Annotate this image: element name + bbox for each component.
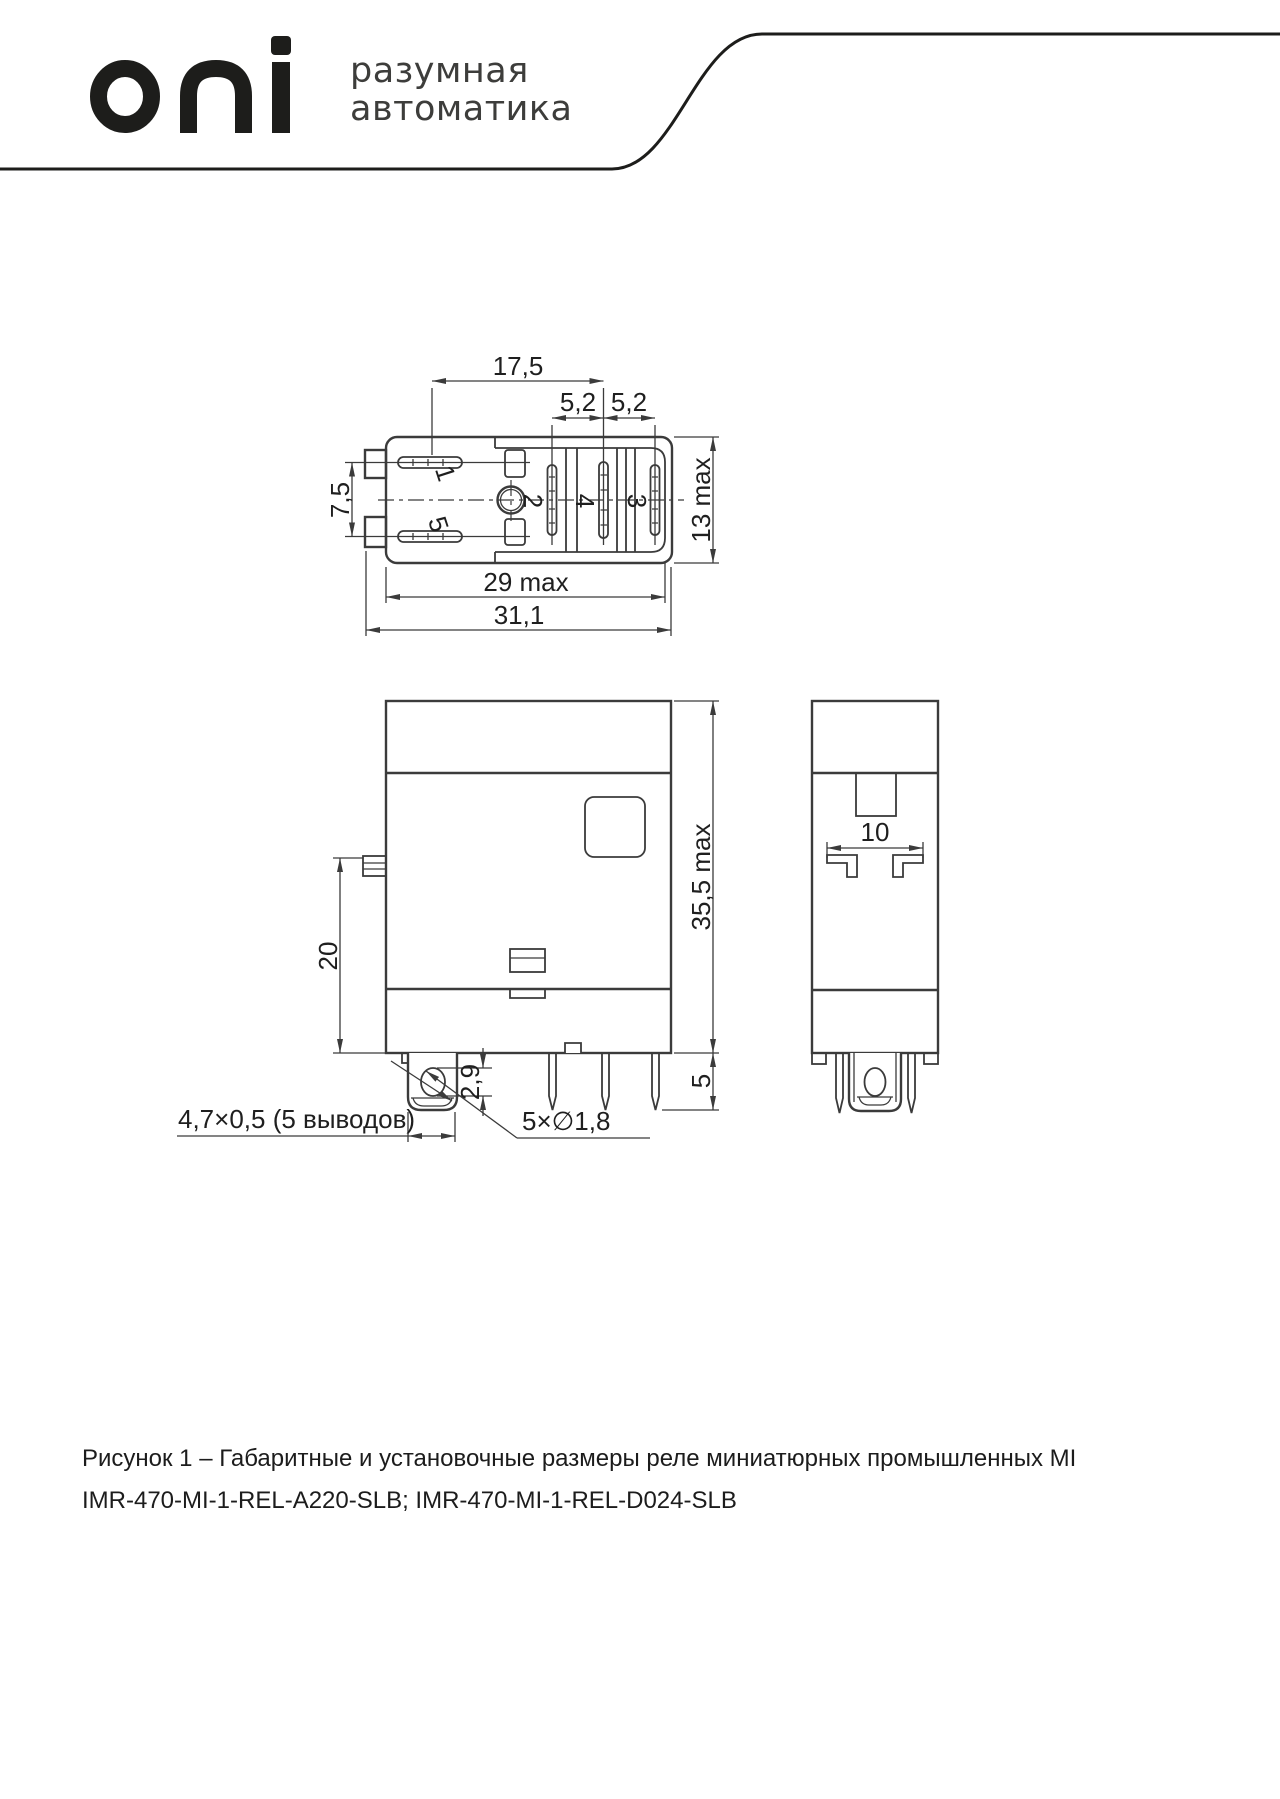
top-view: 1 5 2 4 3 17,5 5,2 5,2 7,5 13 max 29 max	[325, 351, 719, 636]
dim-2-9: 2,9	[455, 1064, 485, 1100]
front-view-body	[386, 701, 671, 1053]
dim-10: 10	[861, 817, 890, 847]
side-view-body	[812, 701, 938, 1053]
pin-label-4: 4	[570, 494, 600, 508]
front-view-window	[585, 797, 645, 857]
side-view-clip-right	[893, 855, 923, 877]
side-view: 10	[812, 701, 938, 1113]
pin-label-1: 1	[429, 462, 462, 485]
top-view-lug-lower	[365, 517, 386, 547]
dim-7-5: 7,5	[325, 482, 355, 518]
pin-label-3: 3	[622, 494, 652, 508]
front-view-blade	[408, 1053, 457, 1110]
datasheet-page: разумная автоматика	[0, 0, 1280, 1799]
front-view-pin-4	[602, 1053, 609, 1110]
relay-dimension-drawing: 1 5 2 4 3 17,5 5,2 5,2 7,5 13 max 29 max	[0, 0, 1280, 1799]
dim-31-1: 31,1	[494, 600, 545, 630]
dim-5-2-left: 5,2	[560, 387, 596, 417]
pin-label-5: 5	[422, 513, 455, 536]
caption-line-2: IMR-470-MI-1-REL-A220-SLB; IMR-470-MI-1-…	[82, 1480, 1202, 1522]
figure-caption: Рисунок 1 – Габаритные и установочные ра…	[82, 1438, 1202, 1522]
side-view-pin-right	[908, 1053, 915, 1113]
front-view-pin-2	[549, 1053, 556, 1110]
label-blade-size: 4,7×0,5 (5 выводов)	[178, 1104, 415, 1134]
front-view-pin-3	[652, 1053, 659, 1110]
front-view-latch	[510, 949, 545, 972]
front-view-side-tab	[363, 856, 386, 876]
dim-13-max: 13 max	[686, 457, 716, 542]
front-view: 20 35,5 max 5 2,9 4,7×0,5 (5 выводов) 5×…	[177, 701, 719, 1142]
side-view-clip-left	[827, 855, 857, 877]
top-view-lug-upper	[365, 450, 386, 478]
dim-5: 5	[686, 1074, 716, 1088]
dim-5-2-right: 5,2	[611, 387, 647, 417]
caption-line-1: Рисунок 1 – Габаритные и установочные ра…	[82, 1438, 1202, 1480]
dim-29-max: 29 max	[483, 567, 568, 597]
dim-35-5-max: 35,5 max	[686, 824, 716, 931]
label-pin-holes: 5×∅1,8	[522, 1106, 610, 1136]
side-view-pin-left	[836, 1053, 843, 1113]
side-view-blade	[849, 1053, 901, 1111]
dim-17-5: 17,5	[493, 351, 544, 381]
side-view-top-slot	[856, 773, 896, 816]
dim-20: 20	[313, 942, 343, 971]
pin-label-2: 2	[518, 494, 548, 508]
